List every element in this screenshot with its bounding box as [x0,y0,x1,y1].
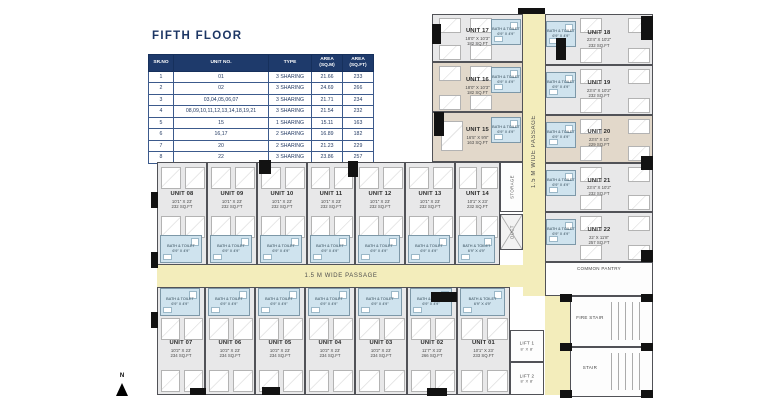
bed [333,318,353,340]
bed [283,318,303,340]
column-icon [560,343,572,351]
unit-area: 182 SQ.FT [433,90,522,96]
bed [580,146,602,161]
service-label: STORAGE [509,175,514,199]
unit-area: 266 SQ.FT [408,353,456,359]
unit-name: UNIT 03 [356,340,406,348]
unit-name: UNIT 08 [158,191,206,199]
column-icon [518,8,545,14]
room-unit-09: BATH & TOILET6'9" X 4'9"UNIT 0910'1" X 2… [207,162,257,265]
unit-label: UNIT 1718'0" X 10'3"182 SQ.FT [433,28,522,47]
bath-room: BATH & TOILET6'9" X 4'9" [210,235,252,263]
bath-room: BATH & TOILET6'9" X 4'9" [458,235,495,263]
unit-name: UNIT 02 [408,340,456,348]
bed [580,195,602,210]
room-unit-22: BATH & TOILET6'9" X 4'9"UNIT 2222' X 11'… [545,212,653,262]
room-unit-14: BATH & TOILET6'9" X 4'9"UNIT 1410'1" X 2… [455,162,500,265]
unit-label: UNIT 0810'1" X 23'232 SQ.FT [158,191,206,210]
bed [311,167,330,189]
bed [433,167,453,189]
bath-room: BATH & TOILET6'9" X 4'9" [208,288,250,316]
unit-label: UNIT 1010'1" X 23'232 SQ.FT [258,191,306,210]
unit-label: UNIT 0710'2" X 23'234 SQ.FT [158,340,204,359]
column-icon [427,388,447,396]
bath-dims: 6'9" X 4'9" [171,302,188,307]
bed [628,195,650,210]
unit-name: UNIT 21 [546,178,652,186]
bath-dims: 6'9" X 4'9" [370,249,387,254]
passage-horizontal-1: 1.5 M WIDE PASSAGE [157,265,525,287]
bath-dims: 6'9" X 4'9" [172,249,189,254]
room-unit-08: BATH & TOILET6'9" X 4'9"UNIT 0810'1" X 2… [157,162,207,265]
bed [161,370,180,392]
bed [285,167,305,189]
column-icon [432,24,441,44]
unit-area: 232 SQ.FT [546,191,652,197]
column-icon [262,387,280,395]
bed [439,45,461,60]
room-unit-20: BATH & TOILET6'9" X 4'9"UNIT 2023'4" X 1… [545,115,653,163]
north-label: N [120,373,124,379]
unit-area: 232 SQ.FT [158,204,206,210]
bed [384,370,405,392]
unit-label: UNIT 1618'0" X 10'3"182 SQ.FT [433,77,522,96]
bed [161,167,181,189]
unit-name: UNIT 22 [546,227,652,235]
bath-room: BATH & TOILET6'9" X 4'9" [310,235,350,263]
room-duct: DUCT [500,214,523,250]
column-icon [431,292,457,302]
unit-label: UNIT 0610'2" X 23'234 SQ.FT [206,340,254,359]
unit-name: UNIT 14 [456,191,499,199]
bed [409,167,429,189]
column-icon [641,250,653,262]
unit-label: UNIT 1923'4" X 10'2"232 SQ.FT [546,80,652,99]
room-lift-2: LIFT 28' X 8' [510,362,544,395]
unit-area: 234 SQ.FT [256,353,304,359]
unit-area: 232 SQ.FT [208,204,256,210]
room-unit-07: BATH & TOILET6'9" X 4'9"UNIT 0710'2" X 2… [157,287,205,395]
column-icon [259,160,271,174]
room-common-pantry: COMMON PANTRY [545,262,653,296]
unit-label: UNIT 1210'1" X 23'232 SQ.FT [356,191,404,210]
bed [383,167,403,189]
passage-label: 1.5 M WIDE PASSAGE [531,115,537,188]
room-unit-17: BATH & TOILET6'9" X 4'9"UNIT 1718'0" X 1… [432,14,523,62]
north-arrow: N [112,364,132,396]
bed [359,167,379,189]
passage-vertical-0: 1.5 M WIDE PASSAGE [523,8,545,296]
unit-name: UNIT 17 [433,28,522,36]
bed [259,318,279,340]
unit-area: 229 SQ.FT [546,142,652,148]
bed [580,48,602,63]
bath-dims: 6'9" X 4'9" [321,249,338,254]
unit-area: 257 SQ.FT [546,240,652,246]
unit-area: 182 SQ.FT [433,41,522,47]
bed [461,318,483,340]
unit-name: UNIT 06 [206,340,254,348]
unit-area: 234 SQ.FT [158,353,204,359]
service-label: DUCT [509,225,514,239]
unit-label: UNIT 0310'2" X 23'234 SQ.FT [356,340,406,359]
bath-room: BATH & TOILET6'9" X 4'9" [460,288,505,316]
column-icon [641,343,653,351]
column-icon [151,192,158,208]
room-unit-01: BATH & TOILET6'9" X 4'9"UNIT 0110'1" X 2… [457,287,510,395]
service-label: FIRE STAIR [574,315,606,321]
bed [411,318,431,340]
bath-dims: 6'9" X 4'9" [272,249,289,254]
room-unit-11: BATH & TOILET6'9" X 4'9"UNIT 1110'1" X 2… [307,162,355,265]
bath-dims: 6'9" X 4'9" [320,302,337,307]
unit-name: UNIT 05 [256,340,304,348]
bed [487,318,509,340]
unit-name: UNIT 11 [308,191,354,199]
column-icon [641,16,653,40]
bed [185,167,205,189]
unit-label: UNIT 1110'1" X 23'232 SQ.FT [308,191,354,210]
column-icon [151,312,158,328]
bath-dims: 6'9" X 4'9" [220,302,237,307]
column-icon [151,252,158,268]
bed [487,370,509,392]
bath-dims: 6'9" X 4'9" [371,302,388,307]
unit-name: UNIT 09 [208,191,256,199]
bed [209,318,229,340]
bed [359,370,380,392]
bed [309,370,329,392]
bed [580,98,602,113]
room-lift-1: LIFT 18' X 8' [510,330,544,362]
bed [435,318,455,340]
unit-area: 233 SQ.FT [458,353,509,359]
unit-label: UNIT 0910'1" X 23'232 SQ.FT [208,191,256,210]
unit-area: 232 SQ.FT [308,204,354,210]
column-icon [348,161,358,177]
bed [359,318,380,340]
column-icon [641,294,653,302]
unit-name: UNIT 16 [433,77,522,85]
unit-area: 234 SQ.FT [306,353,354,359]
bed [233,318,253,340]
bath-room: BATH & TOILET6'9" X 4'9" [408,235,450,263]
unit-area: 163 SQ.FT [433,140,522,146]
unit-area: 232 SQ.FT [406,204,454,210]
column-icon [641,390,653,398]
room-unit-15: BATH & TOILET6'9" X 4'9"UNIT 1516'5" X 9… [432,112,523,162]
bed [283,370,303,392]
bed [384,318,405,340]
unit-name: UNIT 15 [433,127,522,135]
bath-dims: 6'9" X 4'9" [222,249,239,254]
bed [470,95,492,110]
bath-room: BATH & TOILET6'9" X 4'9" [160,288,200,316]
bath-dims: 6'9" X 4'9" [420,249,437,254]
room-unit-05: BATH & TOILET6'9" X 4'9"UNIT 0510'2" X 2… [255,287,305,395]
column-icon [190,388,206,395]
room-unit-16: BATH & TOILET6'9" X 4'9"UNIT 1618'0" X 1… [432,62,523,112]
bed [161,318,180,340]
bath-dims: 6'9" X 4'9" [468,249,485,254]
column-icon [641,156,653,170]
room-storage: STORAGE [500,162,523,212]
room-unit-04: BATH & TOILET6'9" X 4'9"UNIT 0410'2" X 2… [305,287,355,395]
unit-area: 232 SQ.FT [356,204,404,210]
bed [628,48,650,63]
room-unit-10: BATH & TOILET6'9" X 4'9"UNIT 1010'1" X 2… [257,162,307,265]
bath-dims: 6'9" X 4'9" [422,302,439,307]
bath-room: BATH & TOILET6'9" X 4'9" [358,288,402,316]
north-triangle-icon [116,383,128,396]
room-fire-stair: FIRE STAIR [570,296,653,347]
unit-area: 234 SQ.FT [206,353,254,359]
room-unit-06: BATH & TOILET6'9" X 4'9"UNIT 0610'2" X 2… [205,287,255,395]
bath-room: BATH & TOILET6'9" X 4'9" [260,235,302,263]
unit-label: UNIT 1310'1" X 23'232 SQ.FT [406,191,454,210]
service-label: STAIR [574,365,606,371]
column-icon [560,390,572,398]
bed [235,167,255,189]
unit-name: UNIT 12 [356,191,404,199]
unit-label: UNIT 2123'4" X 10'2"232 SQ.FT [546,178,652,197]
floor-plan-page: FIFTH FLOOR SR.NOUNIT NO.TYPEAREA (SQ.M)… [0,0,780,416]
bath-room: BATH & TOILET6'9" X 4'9" [308,288,350,316]
bed [628,98,650,113]
bath-room: BATH & TOILET6'9" X 4'9" [160,235,202,263]
room-unit-12: BATH & TOILET6'9" X 4'9"UNIT 1210'1" X 2… [355,162,405,265]
service-dims: 8' X 8' [511,379,543,384]
room-unit-21: BATH & TOILET6'9" X 4'9"UNIT 2123'4" X 1… [545,163,653,212]
unit-name: UNIT 18 [546,30,652,38]
bed [459,167,477,189]
unit-name: UNIT 07 [158,340,204,348]
unit-label: UNIT 2023'4" X 10'229 SQ.FT [546,129,652,148]
bed [439,95,461,110]
bed [481,167,499,189]
unit-name: UNIT 13 [406,191,454,199]
unit-name: UNIT 19 [546,80,652,88]
unit-name: UNIT 01 [458,340,509,348]
bed [233,370,253,392]
unit-area: 234 SQ.FT [356,353,406,359]
passage-label: 1.5 M WIDE PASSAGE [304,273,377,279]
floor-plan: 1.5 M WIDE PASSAGE1.5 M WIDE PASSAGEBATH… [0,0,780,416]
unit-label: UNIT 0510'2" X 23'234 SQ.FT [256,340,304,359]
unit-area: 232 SQ.FT [546,93,652,99]
room-unit-03: BATH & TOILET6'9" X 4'9"UNIT 0310'2" X 2… [355,287,407,395]
unit-area: 232 SQ.FT [456,204,499,210]
bed [461,370,483,392]
unit-label: UNIT 2222' X 11'8"257 SQ.FT [546,227,652,246]
service-dims: 8' X 8' [511,346,543,351]
unit-area: 232 SQ.FT [258,204,306,210]
bed [333,370,353,392]
unit-label: UNIT 0211'7" X 23'266 SQ.FT [408,340,456,359]
room-unit-02: BATH & TOILET6'9" X 4'9"UNIT 0211'7" X 2… [407,287,457,395]
bed [309,318,329,340]
bed [209,370,229,392]
unit-label: UNIT 1410'1" X 23'232 SQ.FT [456,191,499,210]
bed [470,45,492,60]
bed [211,167,231,189]
bath-dims: 6'9" X 4'9" [270,302,287,307]
stair-treads [611,353,642,390]
unit-label: UNIT 0410'2" X 23'234 SQ.FT [306,340,354,359]
column-icon [556,38,566,60]
bath-dims: 6'9" X 4'9" [474,302,491,307]
room-unit-13: BATH & TOILET6'9" X 4'9"UNIT 1310'1" X 2… [405,162,455,265]
unit-name: UNIT 04 [306,340,354,348]
unit-label: UNIT 0110'1" X 23'233 SQ.FT [458,340,509,359]
column-icon [434,112,444,136]
unit-label: UNIT 1516'5" X 9'8"163 SQ.FT [433,127,522,146]
service-label: LIFT 28' X 8' [511,373,543,384]
stair-treads [611,302,642,340]
bath-room: BATH & TOILET6'9" X 4'9" [258,288,300,316]
bath-room: BATH & TOILET6'9" X 4'9" [358,235,400,263]
bed [184,318,203,340]
room-unit-19: BATH & TOILET6'9" X 4'9"UNIT 1923'4" X 1… [545,65,653,115]
column-icon [560,294,572,302]
service-label: LIFT 18' X 8' [511,340,543,351]
unit-name: UNIT 10 [258,191,306,199]
bed [580,245,602,260]
unit-name: UNIT 20 [546,129,652,137]
service-label: COMMON PANTRY [546,266,652,272]
